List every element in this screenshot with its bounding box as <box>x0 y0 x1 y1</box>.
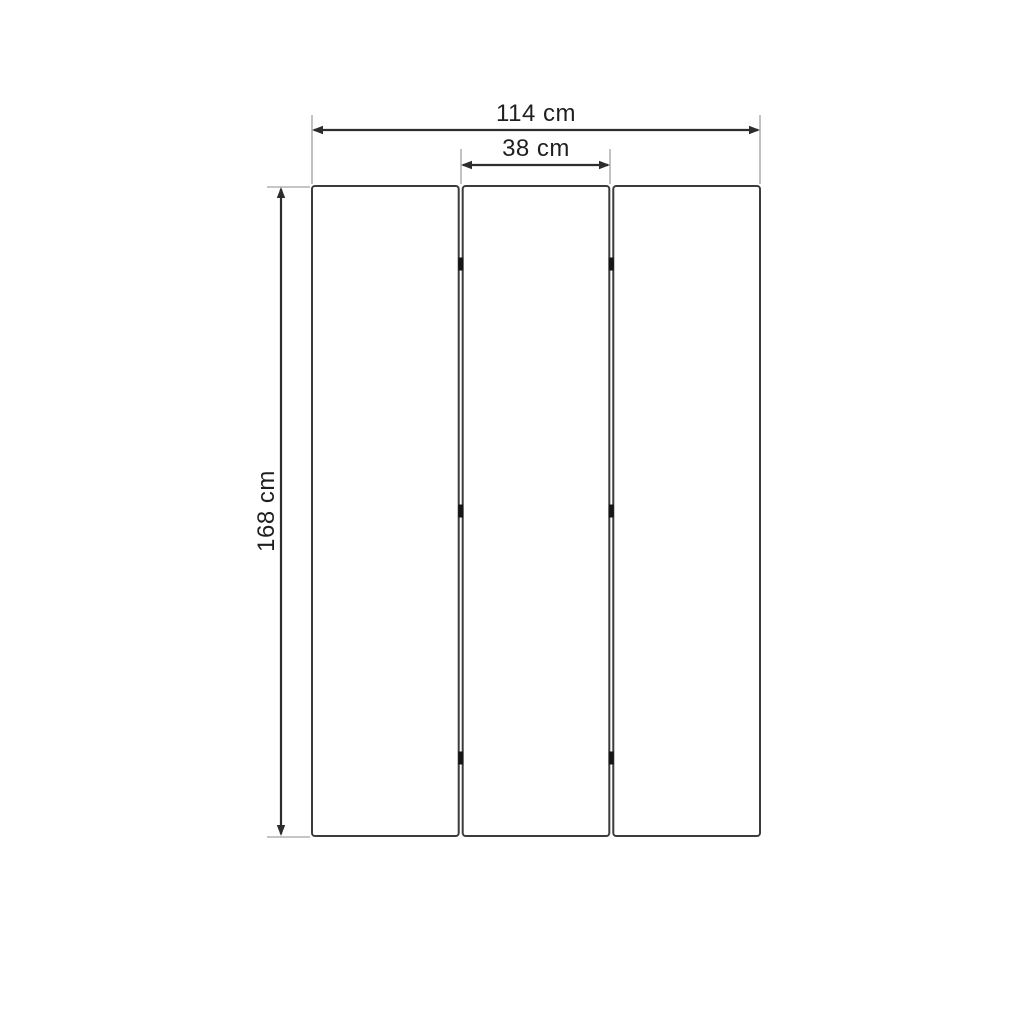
hinge-mark <box>458 258 463 271</box>
total-width-label: 114 cm <box>496 100 576 127</box>
arrowhead-bottom <box>277 825 285 836</box>
hinge-mark <box>609 752 614 765</box>
dimension-diagram-canvas: 114 cm 38 cm 168 cm <box>0 0 1024 1024</box>
panel-center <box>463 186 610 836</box>
arrowhead-left <box>461 161 472 169</box>
dimension-diagram: 114 cm 38 cm 168 cm <box>0 0 1024 1024</box>
hinge-mark <box>458 505 463 518</box>
panel-right <box>613 186 760 836</box>
height-label: 168 cm <box>253 470 280 552</box>
dimension-height: 168 cm <box>253 187 310 837</box>
hinge-mark <box>609 505 614 518</box>
arrowhead-right <box>749 126 760 134</box>
hinge-mark <box>458 752 463 765</box>
dimension-panel-width: 38 cm <box>461 135 610 184</box>
arrowhead-right <box>599 161 610 169</box>
panel-width-label: 38 cm <box>502 135 570 162</box>
divider-panels <box>312 186 760 836</box>
arrowhead-left <box>312 126 323 134</box>
arrowhead-top <box>277 187 285 198</box>
panel-left <box>312 186 459 836</box>
hinge-mark <box>609 258 614 271</box>
